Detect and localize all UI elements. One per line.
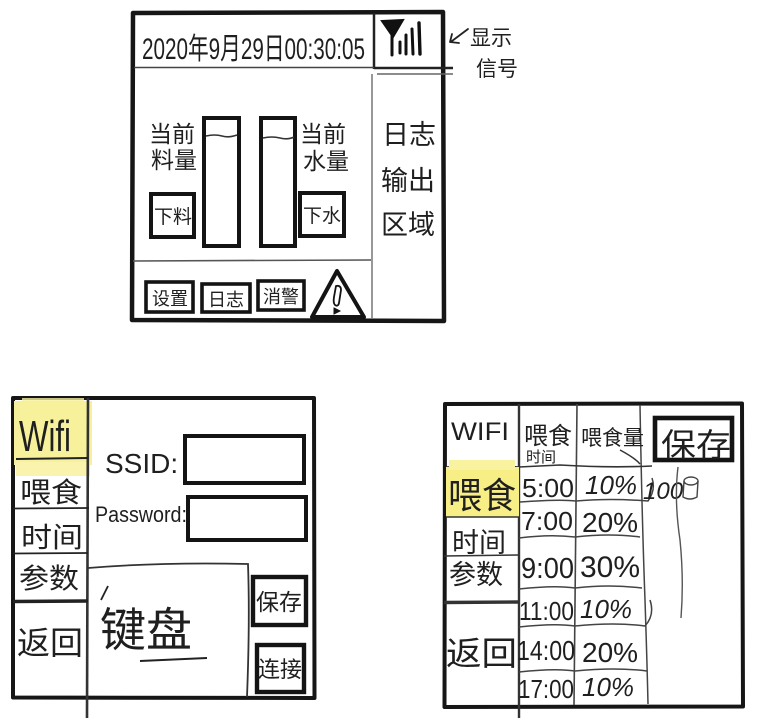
- svg-text:7:00: 7:00: [521, 506, 573, 536]
- svg-text:14:00: 14:00: [517, 635, 575, 666]
- svg-text:连接: 连接: [258, 657, 302, 682]
- svg-text:日志: 日志: [208, 290, 244, 310]
- svg-text:SSID:: SSID:: [105, 448, 178, 479]
- svg-text:30%: 30%: [580, 551, 640, 584]
- svg-text:喂食: 喂食: [20, 477, 82, 508]
- svg-text:料量: 料量: [151, 147, 197, 173]
- svg-text:喂食: 喂食: [524, 423, 572, 450]
- svg-text:输出: 输出: [381, 166, 435, 196]
- svg-text:键盘: 键盘: [100, 604, 192, 656]
- svg-text:返回: 返回: [446, 635, 517, 672]
- svg-text:10%: 10%: [585, 470, 637, 500]
- svg-text:20%: 20%: [582, 637, 638, 668]
- svg-text:20%: 20%: [582, 507, 638, 538]
- svg-text:10%: 10%: [580, 594, 632, 624]
- svg-text:日志: 日志: [382, 120, 436, 150]
- svg-text:保存: 保存: [661, 427, 731, 463]
- svg-text:11:00: 11:00: [519, 596, 574, 626]
- svg-text:保存: 保存: [256, 589, 302, 615]
- svg-text:100: 100: [643, 478, 684, 505]
- svg-text:当前: 当前: [149, 121, 195, 147]
- svg-text:Wifi: Wifi: [19, 412, 71, 461]
- svg-text:10%: 10%: [582, 672, 634, 702]
- svg-text:设置: 设置: [152, 289, 188, 309]
- svg-text:5:00: 5:00: [522, 473, 574, 503]
- svg-text:9:00: 9:00: [521, 553, 574, 585]
- svg-text:当前: 当前: [300, 121, 346, 147]
- svg-text:喂食量: 喂食量: [581, 427, 644, 450]
- svg-text:参数: 参数: [449, 560, 503, 590]
- svg-text:WIFI: WIFI: [451, 418, 509, 446]
- svg-text:参数: 参数: [19, 563, 79, 594]
- svg-text:下料: 下料: [154, 206, 192, 228]
- svg-text:时间: 时间: [452, 528, 506, 558]
- svg-text:时间: 时间: [21, 522, 83, 553]
- svg-text:消警: 消警: [263, 287, 299, 307]
- svg-text:2020年9月29日00:30:05: 2020年9月29日00:30:05: [142, 33, 365, 66]
- svg-text:喂食: 喂食: [448, 475, 516, 516]
- svg-text:信号: 信号: [476, 58, 518, 81]
- svg-text:水量: 水量: [303, 148, 349, 174]
- svg-text:Password:: Password:: [95, 502, 187, 527]
- svg-text:返回: 返回: [17, 625, 83, 661]
- svg-text:17:00: 17:00: [518, 674, 574, 704]
- svg-text:显示: 显示: [470, 27, 512, 50]
- svg-text:时间: 时间: [526, 449, 556, 466]
- svg-text:下水: 下水: [303, 205, 341, 227]
- svg-text:区域: 区域: [381, 210, 435, 240]
